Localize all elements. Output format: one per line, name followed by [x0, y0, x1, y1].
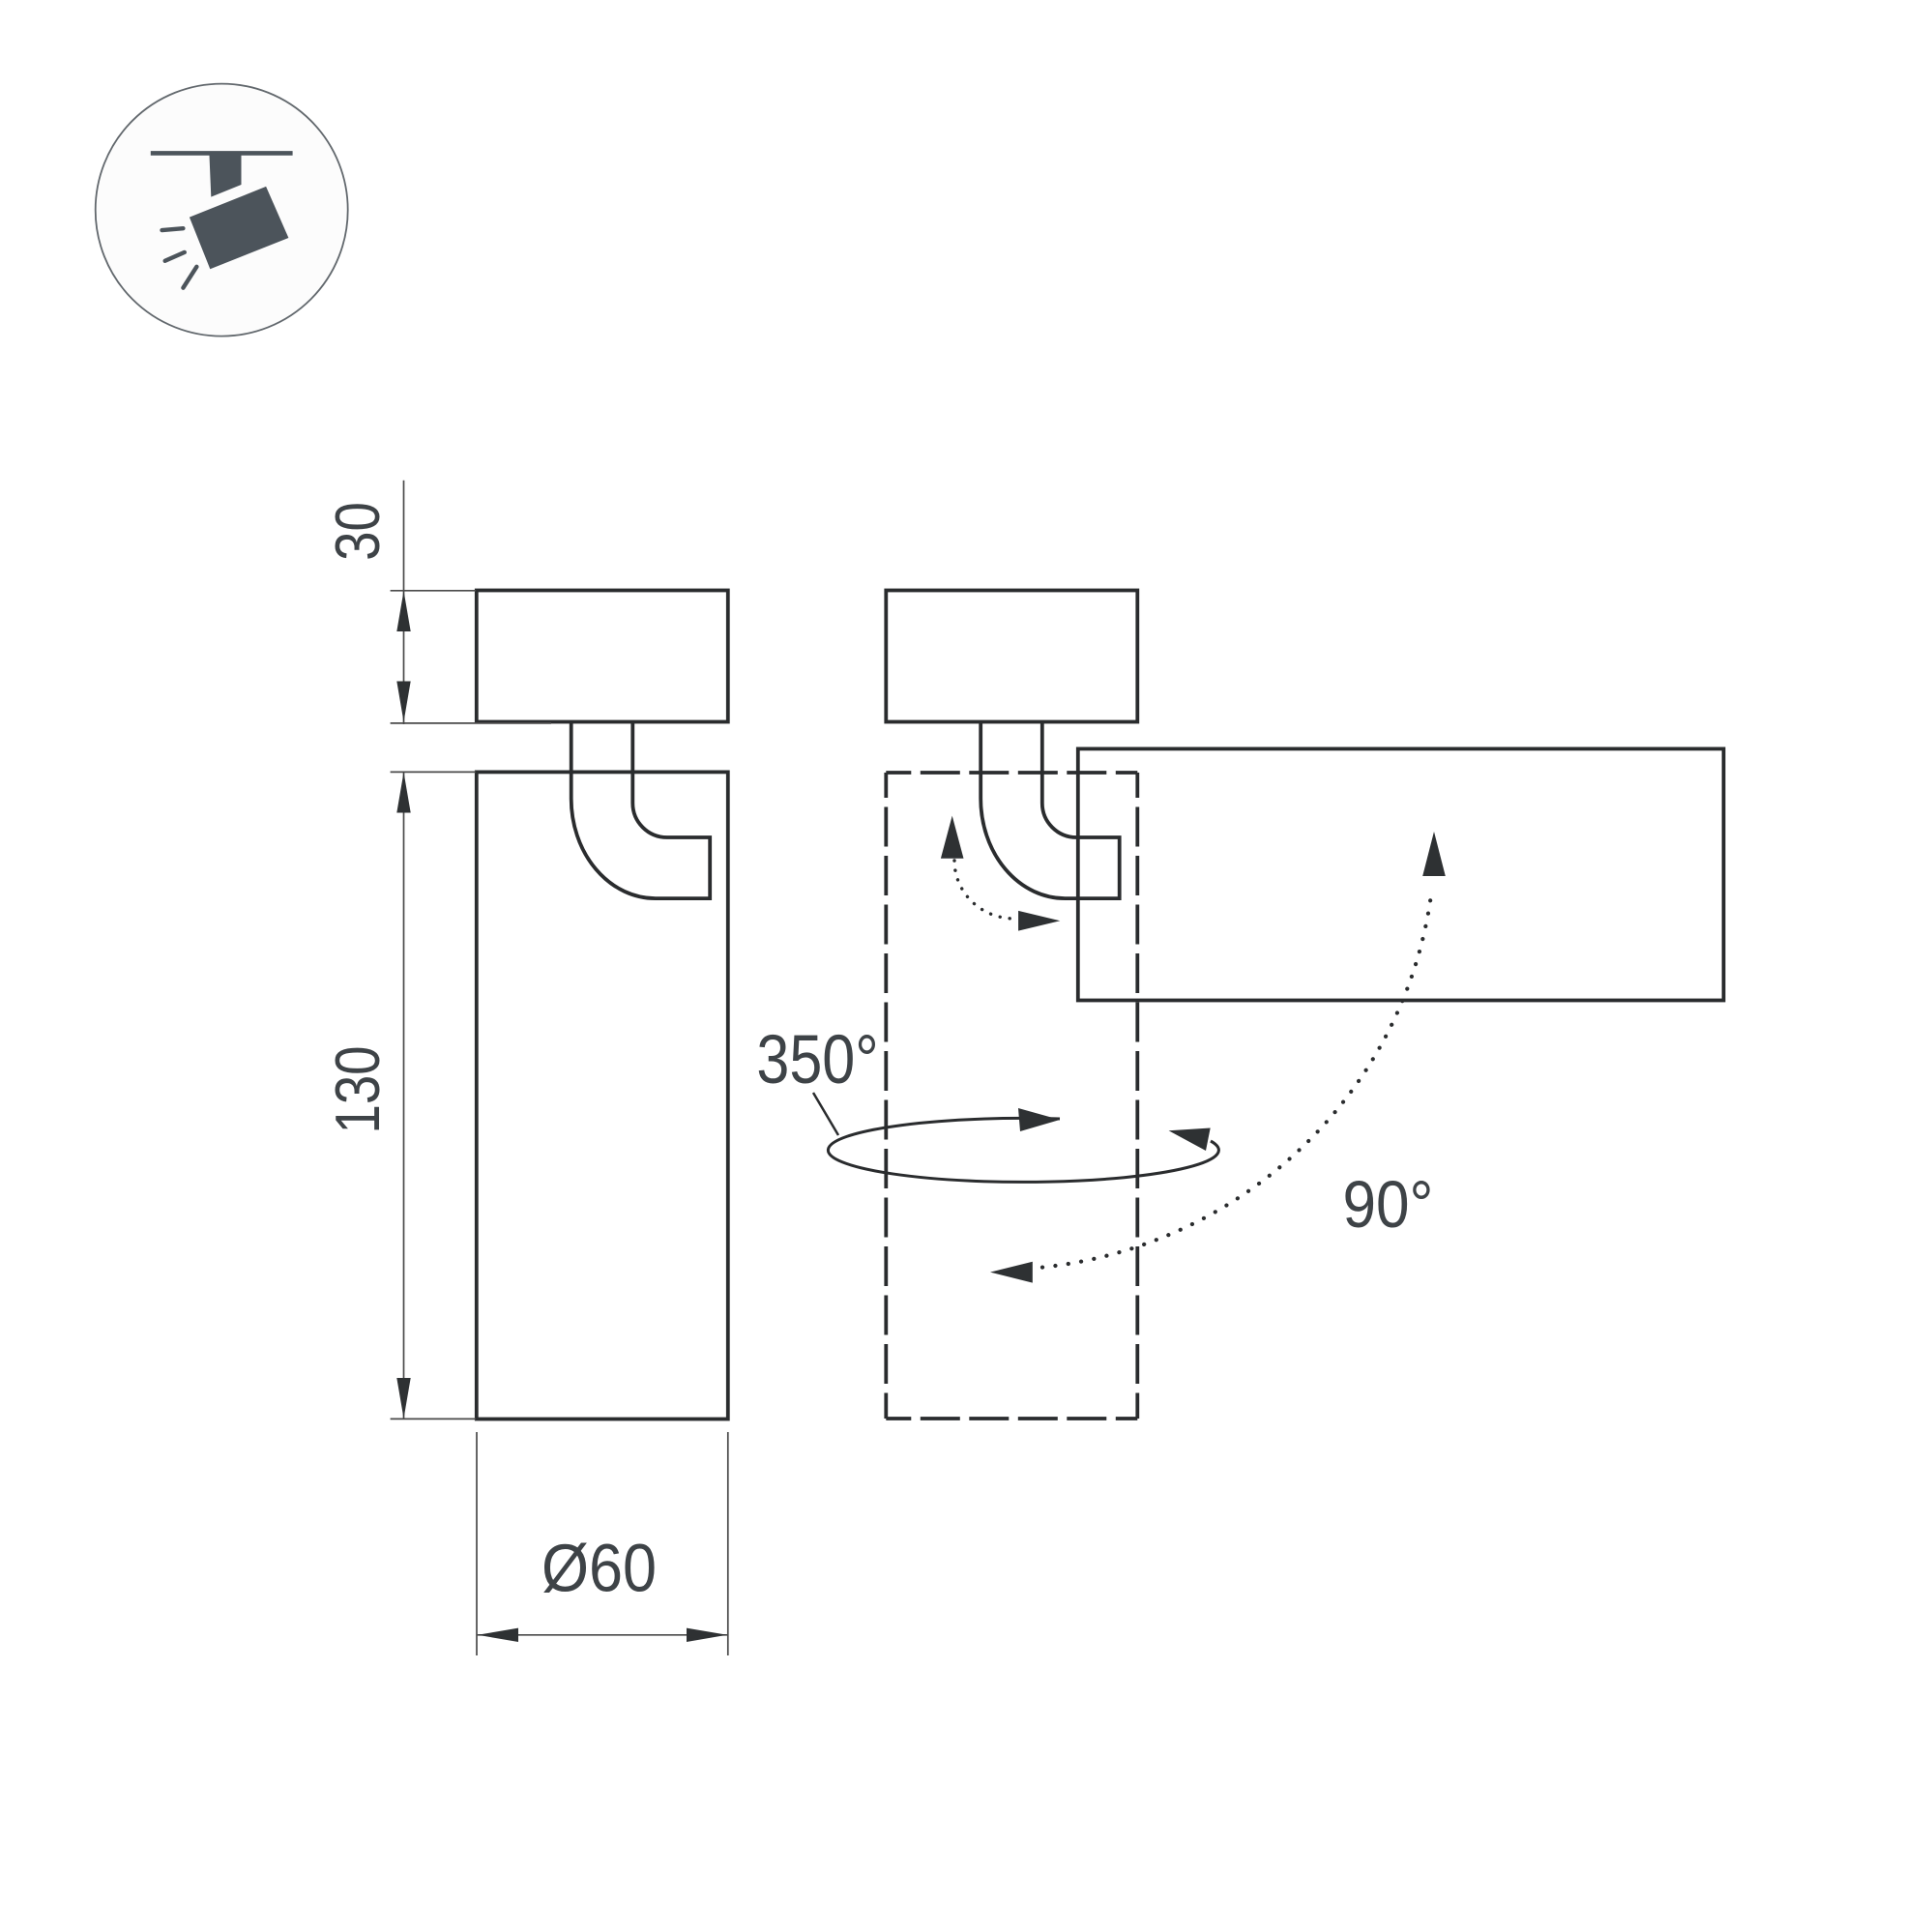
svg-text:350°: 350°	[756, 1022, 878, 1098]
svg-text:130: 130	[323, 1045, 394, 1133]
svg-text:90°: 90°	[1342, 1167, 1433, 1242]
svg-text:30: 30	[322, 502, 393, 561]
svg-text:Ø60: Ø60	[542, 1531, 657, 1606]
